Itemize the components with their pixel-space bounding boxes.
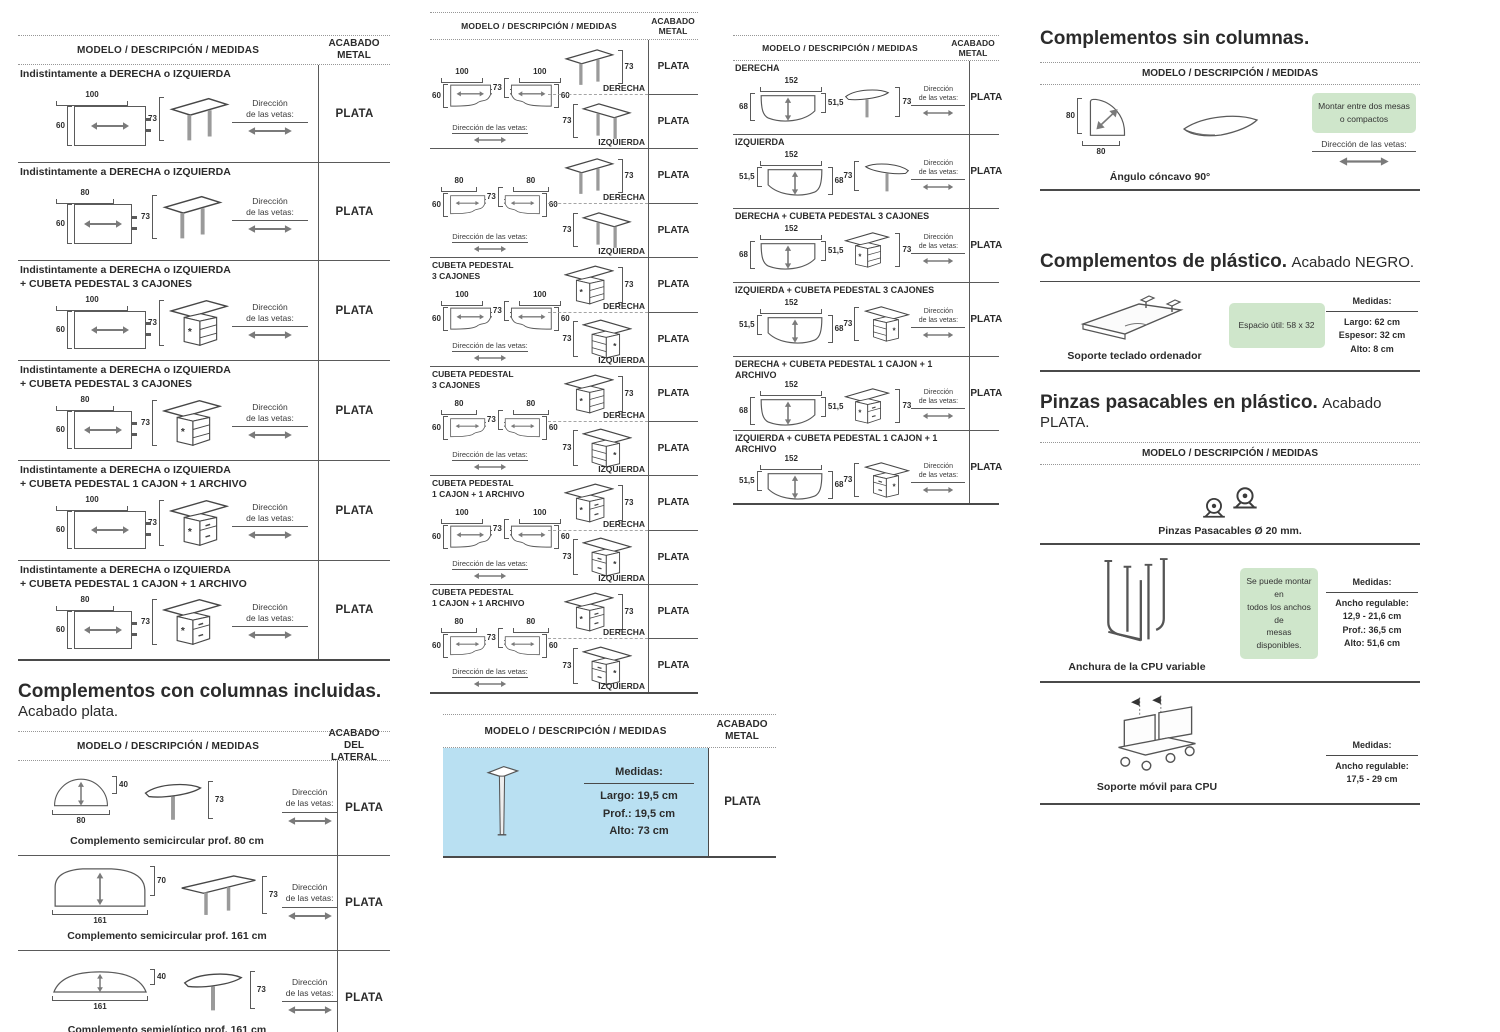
dimension-label: 73 (563, 662, 572, 670)
double-arrow-icon (83, 425, 123, 435)
plan-diagram: 152 51,5 68 (739, 455, 843, 505)
grain-arrow-icon (287, 816, 333, 826)
model-caption: Anchura de la CPU variable (1068, 661, 1205, 673)
column-header: MODELO / DESCRIPCIÓN / MEDIDAS (733, 43, 947, 53)
side-label: DERECHA (603, 301, 645, 311)
dimension-label: 60 (432, 424, 441, 432)
column-header-finish: ACABADOMETAL (947, 38, 999, 58)
finish-value: PLATA (708, 748, 776, 856)
dimension-label: 161 (93, 917, 106, 925)
grain-direction-note: Direcciónde las vetas: (282, 882, 337, 923)
grain-arrow-icon (247, 330, 293, 340)
dimension-label: 100 (85, 496, 98, 504)
plan-diagram: 100 60 (56, 496, 146, 549)
sub-row-izquierda: 73 IZQUIERDA (548, 203, 648, 258)
column-header: MODELO / DESCRIPCIÓN / MEDIDAS (18, 741, 318, 752)
dimension-label: 68 (835, 177, 844, 185)
grain-arrow-icon (473, 680, 507, 688)
model-caption: Ángulo cóncavo 90° (1040, 167, 1280, 189)
dimension-label: 100 (455, 291, 468, 299)
table-header: MODELO / DESCRIPCIÓN / MEDIDAS ACABADOME… (443, 714, 776, 748)
dimension-label: 80 (526, 618, 535, 626)
row-title: Indistintamente a DERECHA o IZQUIERDA (18, 65, 318, 82)
grain-direction-note: Direcciónde las vetas: (911, 307, 965, 342)
section-title: Complementos con columnas incluidas. Aca… (18, 681, 390, 721)
dimension-label: 80 (455, 177, 464, 185)
side-label: DERECHA (603, 627, 645, 637)
dimension-label: 51,5 (739, 173, 755, 181)
column-header-finish: ACABADO DELLATERAL (318, 728, 390, 764)
sub-row-derecha: 73 DERECHA (548, 367, 648, 421)
grain-direction-note: Dirección de las vetas: (432, 450, 548, 473)
finish-value: PLATA (969, 135, 1002, 208)
dimension-label: 80 (1097, 148, 1106, 156)
row-title: CUBETA PEDESTAL3 CAJONES (432, 369, 548, 390)
grain-arrow-icon (922, 331, 954, 339)
dimension-label: 73 (843, 172, 852, 180)
dimension-label: 73 (493, 84, 502, 92)
side-label: DERECHA (603, 83, 645, 93)
side-label: IZQUIERDA (598, 246, 645, 256)
dimension-label: 80 (77, 817, 86, 825)
measurements-block: Medidas: Largo: 19,5 cm Prof.: 19,5 cm A… (584, 764, 694, 839)
double-arrow-icon (90, 121, 130, 131)
grain-arrow-icon (1338, 156, 1390, 167)
dimension-label: 40 (157, 973, 166, 981)
measurements-block: Medidas: Largo: 62 cm Espesor: 32 cm Alt… (1326, 295, 1418, 356)
plan-diagram: 152 68 51,5 (739, 381, 843, 431)
desk-icon (180, 967, 246, 1013)
desk-plan-icon (764, 167, 826, 201)
table-row: Indistintamente a DERECHA o IZQUIERDA+ C… (18, 561, 390, 661)
finish-value: PLATA (337, 856, 390, 950)
dimension-label: 73 (563, 117, 572, 125)
dimension-label: 60 (56, 220, 65, 228)
desk-pedestal-file-drawer-icon (843, 386, 891, 426)
table-row: DERECHA + CUBETA PEDESTAL 3 CAJONES 152 … (733, 209, 999, 283)
grain-arrow-icon (473, 572, 507, 580)
sub-row-derecha: 73 DERECHA (548, 40, 648, 94)
complements-section: Complementos sin columnas. MODELO / DESC… (1040, 28, 1420, 805)
table-row: Anchura de la CPU variable Se puede mont… (1040, 545, 1420, 683)
plan-diagram: 80 60 (56, 596, 132, 649)
column-header: MODELO / DESCRIPCIÓN / MEDIDAS (1040, 442, 1420, 465)
plan-diagram: 80 60 (56, 396, 132, 449)
desk-icon (142, 777, 204, 823)
desk-pedestal-3-drawers-icon (843, 230, 891, 270)
dimension-label: 73 (625, 390, 634, 398)
model-caption: Complemento semicircular prof. 80 cm (52, 833, 282, 851)
grain-direction-note: Dirección de las vetas: (432, 667, 548, 690)
model-caption: Complemento semielíptico prof. 161 cm (52, 1022, 282, 1032)
plan-diagram: 100 60 (56, 91, 146, 146)
sub-row-izquierda: 73 IZQUIERDA (548, 312, 648, 367)
grain-arrow-icon (473, 245, 507, 253)
dimension-label: 73 (902, 246, 911, 254)
desk-pedestal-3-drawers-icon (863, 304, 911, 344)
table-header: MODELO / DESCRIPCIÓN / MEDIDAS ACABADO D… (18, 731, 390, 761)
desk-icon (863, 156, 911, 196)
dimension-label: 100 (533, 291, 546, 299)
finish-value: PLATA (649, 421, 698, 476)
desk-icon (843, 82, 891, 122)
finish-value: PLATA (649, 149, 698, 203)
desk-plan-icon (450, 193, 486, 217)
dimension-label: 73 (902, 98, 911, 106)
table-row: Indistintamente a DERECHA o IZQUIERDA+ C… (18, 261, 390, 361)
grain-direction-note: Direcciónde las vetas: (911, 388, 965, 423)
dimension-label: 73 (625, 608, 634, 616)
grain-direction-note: Direcciónde las vetas: (282, 977, 337, 1018)
column-header-finish: ACABADOMETAL (708, 719, 776, 743)
measurements-block: Medidas: Ancho regulable: 17,5 - 29 cm (1326, 739, 1418, 787)
dimension-label: 100 (85, 296, 98, 304)
row-title: DERECHA + CUBETA PEDESTAL 3 CAJONES (733, 209, 969, 222)
grain-arrow-icon (287, 1005, 333, 1015)
table-row: IZQUIERDA + CUBETA PEDESTAL 3 CAJONES 15… (733, 283, 999, 357)
dimension-label: 73 (269, 891, 278, 899)
sub-row-derecha: 73 DERECHA (548, 476, 648, 530)
desk-plan-icon (504, 634, 540, 658)
dimension-label: 73 (141, 213, 150, 221)
row-title: CUBETA PEDESTAL3 CAJONES (432, 260, 548, 281)
table-header: MODELO / DESCRIPCIÓN / MEDIDAS ACABADOME… (733, 35, 999, 61)
desk-pedestal-3-drawers-icon (168, 297, 230, 349)
desk-icon (180, 872, 258, 918)
grain-direction-note: Direcciónde las vetas: (232, 602, 308, 643)
dimension-label: 60 (56, 122, 65, 130)
finish-value: PLATA (318, 65, 390, 162)
grain-arrow-icon (247, 430, 293, 440)
desk-plan-icon (757, 93, 819, 127)
grain-direction-note: Direcciónde las vetas: (282, 787, 337, 828)
semicircle-plan-icon (52, 866, 148, 908)
dimension-label: 100 (455, 68, 468, 76)
dimension-label: 73 (487, 193, 496, 201)
desk-plan-icon (450, 84, 492, 108)
plan-diagram: 40 80 (52, 776, 128, 825)
double-arrow-icon (83, 219, 123, 229)
cable-clip-icon (1201, 495, 1227, 519)
grain-arrow-icon (473, 463, 507, 471)
grain-arrow-icon (922, 412, 954, 420)
finish-value: PLATA (318, 361, 390, 460)
dimension-label: 100 (533, 68, 546, 76)
plan-diagram: 152 51,5 68 (739, 299, 843, 349)
grain-arrow-icon (473, 354, 507, 362)
desk-plan-icon (510, 84, 552, 108)
table-row: Indistintamente a DERECHA o IZQUIERDA 10… (18, 65, 390, 163)
finish-value: PLATA (969, 357, 1002, 430)
desk-pedestal-3-drawers-icon (161, 397, 223, 449)
model-caption: Complemento semicircular prof. 161 cm (52, 928, 282, 946)
dimension-label: 60 (432, 201, 441, 209)
plan-diagram: 152 51,5 68 (739, 151, 843, 201)
dimension-label: 80 (81, 396, 90, 404)
desk-plan-icon (450, 416, 486, 440)
dimension-label: 51,5 (739, 321, 755, 329)
table-row-group: CUBETA PEDESTAL3 CAJONES 100 60 73 100 6… (430, 258, 698, 367)
dimension-label: 60 (432, 642, 441, 650)
finish-value: PLATA (649, 258, 698, 312)
dimension-label: 60 (432, 315, 441, 323)
finish-value: PLATA (969, 61, 1002, 134)
grain-arrow-icon (922, 109, 954, 117)
dimension-label: 161 (93, 1003, 106, 1011)
note-box: Espacio útil: 58 x 32 (1229, 303, 1325, 348)
catalog-page: MODELO / DESCRIPCIÓN / MEDIDAS ACABADOME… (0, 0, 1500, 1032)
dimension-label: 68 (739, 103, 748, 111)
grain-arrow-icon (922, 486, 954, 494)
grain-direction-note: Dirección de las vetas: (1312, 133, 1416, 152)
dimension-label: 73 (141, 419, 150, 427)
grain-direction-note: Dirección de las vetas: (432, 123, 548, 146)
dimension-label: 73 (141, 618, 150, 626)
finish-value: PLATA (318, 163, 390, 260)
column-header-finish: ACABADOMETAL (648, 16, 698, 36)
table-row: DERECHA + CUBETA PEDESTAL 1 CAJON + 1 AR… (733, 357, 999, 431)
table-row: 40 80 73 Complemento semicircular prof. … (18, 761, 390, 856)
dimension-label: 73 (563, 444, 572, 452)
table-row: 40 161 73 Complemento semielíptico prof.… (18, 951, 390, 1032)
finish-value: PLATA (649, 585, 698, 638)
plan-diagram: 80 60 73 80 60 (432, 390, 548, 450)
model-caption: Pinzas Pasacables Ø 20 mm. (1040, 525, 1420, 537)
sub-row-izquierda: 73 IZQUIERDA (548, 530, 648, 585)
dimension-label: 80 (81, 189, 90, 197)
table-row-group: CUBETA PEDESTAL1 CAJON + 1 ARCHIVO 80 60… (430, 585, 698, 694)
finish-value: PLATA (969, 209, 1002, 282)
table-row: Soporte teclado ordenador Espacio útil: … (1040, 281, 1420, 372)
double-arrow-icon (83, 625, 123, 635)
keyboard-tray-icon (1075, 290, 1195, 346)
row-title (432, 42, 548, 53)
finish-value: PLATA (337, 761, 390, 855)
cable-clip-icon (1231, 483, 1259, 511)
finish-value: PLATA (649, 530, 698, 585)
table-row: Indistintamente a DERECHA o IZQUIERDA+ C… (18, 461, 390, 561)
dimension-label: 60 (432, 533, 441, 541)
table-row: Indistintamente a DERECHA o IZQUIERDA+ C… (18, 361, 390, 461)
table-row: Medidas: Largo: 19,5 cm Prof.: 19,5 cm A… (443, 748, 776, 858)
table-leg-icon (483, 758, 521, 846)
dimension-label: 80 (1066, 112, 1075, 120)
table-row: 80 80 Montar entre dos mesaso compactos … (1040, 85, 1420, 167)
row-title: CUBETA PEDESTAL1 CAJON + 1 ARCHIVO (432, 587, 548, 608)
finish-value: PLATA (969, 283, 1002, 356)
dimension-label: 51,5 (828, 247, 844, 255)
side-label: DERECHA (603, 192, 645, 202)
column-header: MODELO / DESCRIPCIÓN / MEDIDAS (18, 45, 318, 56)
dimension-label: 73 (625, 172, 634, 180)
sub-row-derecha: 73 DERECHA (548, 149, 648, 203)
desk-plan-icon (504, 416, 540, 440)
plan-diagram: 80 60 (56, 189, 132, 244)
finish-value: PLATA (649, 94, 698, 149)
finish-value: PLATA (318, 261, 390, 360)
dimension-label: 152 (785, 151, 798, 159)
row-title: Indistintamente a DERECHA o IZQUIERDA+ C… (18, 361, 318, 391)
desk-plan-icon (510, 525, 552, 549)
grain-direction-note: Direcciónde las vetas: (232, 302, 308, 343)
note-box: Se puede montar entodos los anchos demes… (1240, 568, 1318, 659)
dimension-label: 73 (902, 402, 911, 410)
dimension-label: 60 (432, 92, 441, 100)
dimension-label: 73 (625, 63, 634, 71)
dimension-label: 80 (526, 177, 535, 185)
finish-value: PLATA (337, 951, 390, 1032)
side-label: DERECHA (603, 519, 645, 529)
grain-direction-note: Direcciónde las vetas: (911, 85, 965, 120)
finish-value: PLATA (649, 476, 698, 530)
model-caption: Soporte móvil para CPU (1097, 781, 1217, 793)
desk-plan-icon (764, 315, 826, 349)
dimension-label: 73 (493, 525, 502, 533)
dimension-label: 73 (563, 335, 572, 343)
cpu-holder-icon (1093, 555, 1181, 655)
semielliptic-plan-icon (52, 969, 148, 994)
table-row-group: 80 60 73 80 60 Dirección de las vetas: 7… (430, 149, 698, 258)
dimension-label: 152 (785, 77, 798, 85)
column-header: MODELO / DESCRIPCIÓN / MEDIDAS (430, 21, 648, 31)
dimension-label: 73 (257, 986, 266, 994)
plan-diagram: 80 60 73 80 60 (432, 608, 548, 667)
dimension-label: 73 (487, 416, 496, 424)
row-title: CUBETA PEDESTAL1 CAJON + 1 ARCHIVO (432, 478, 548, 499)
side-label: IZQUIERDA (598, 681, 645, 691)
grain-arrow-icon (922, 183, 954, 191)
dimension-label: 80 (526, 400, 535, 408)
section-title: Pinzas pasacables en plástico. Acabado P… (1040, 392, 1420, 432)
dimension-label: 73 (625, 281, 634, 289)
grain-direction-note: Direcciónde las vetas: (232, 502, 308, 543)
desk-icon (161, 191, 223, 243)
finish-value: PLATA (318, 461, 390, 560)
double-arrow-icon (90, 325, 130, 335)
column-header: MODELO / DESCRIPCIÓN / MEDIDAS (443, 726, 708, 737)
finish-value: PLATA (649, 203, 698, 258)
grain-direction-note: Dirección de las vetas: (432, 559, 548, 582)
middle-table-section: MODELO / DESCRIPCIÓN / MEDIDAS ACABADOME… (430, 12, 698, 694)
dimension-label: 73 (563, 553, 572, 561)
grain-arrow-icon (247, 630, 293, 640)
plan-diagram: 80 80 (1066, 93, 1130, 156)
table-row-group: 100 60 73 100 60 Dirección de las vetas:… (430, 40, 698, 149)
sub-row-izquierda: 73 IZQUIERDA (548, 421, 648, 476)
dimension-label: 152 (785, 381, 798, 389)
dimension-label: 73 (493, 307, 502, 315)
desk-icon (168, 93, 230, 145)
dimension-label: 73 (625, 499, 634, 507)
sub-row-derecha: 73 DERECHA (548, 258, 648, 312)
dimension-label: 73 (843, 320, 852, 328)
dimension-label: 40 (119, 781, 128, 789)
measurements-block: Medidas: Ancho regulable: 12,9 - 21,6 cm… (1326, 576, 1418, 651)
desk-pedestal-file-drawer-icon (168, 497, 230, 549)
desk-plan-icon (764, 471, 826, 505)
row-title (432, 151, 548, 162)
desk-plan-icon (450, 634, 486, 658)
section-title: Complementos de plástico. Acabado NEGRO. (1040, 251, 1420, 273)
finish-value: PLATA (649, 40, 698, 94)
table-row: 70 161 73 Complemento semicircular prof.… (18, 856, 390, 951)
dimension-label: 73 (563, 226, 572, 234)
row-title: Indistintamente a DERECHA o IZQUIERDA+ C… (18, 561, 318, 591)
right-table-section: MODELO / DESCRIPCIÓN / MEDIDAS ACABADOME… (733, 35, 999, 505)
dimension-label: 51,5 (828, 403, 844, 411)
table-row: IZQUIERDA 152 51,5 68 73 Direcciónde las… (733, 135, 999, 209)
plan-diagram: 80 60 73 80 60 (432, 162, 548, 232)
finish-value: PLATA (318, 561, 390, 659)
section-title: Complementos sin columnas. (1040, 28, 1420, 50)
grain-direction-note: Dirección de las vetas: (432, 341, 548, 364)
dimension-label: 73 (215, 796, 224, 804)
sub-row-izquierda: 73 IZQUIERDA (548, 94, 648, 149)
grain-arrow-icon (247, 224, 293, 234)
dimension-label: 152 (785, 455, 798, 463)
desk-plan-icon (510, 307, 552, 331)
plan-diagram: 40 161 (52, 969, 166, 1011)
model-caption: Soporte teclado ordenador (1067, 350, 1201, 362)
table-row-group: CUBETA PEDESTAL3 CAJONES 80 60 73 80 60 … (430, 367, 698, 476)
row-title: DERECHA + CUBETA PEDESTAL 1 CAJON + 1 AR… (733, 357, 969, 381)
corner-top-icon (1181, 111, 1261, 141)
cpu-trolley-icon (1107, 691, 1207, 773)
desk-plan-icon (757, 397, 819, 431)
dimension-label: 152 (785, 299, 798, 307)
dimension-label: 68 (835, 481, 844, 489)
dimension-label: 51,5 (739, 477, 755, 485)
table-row: DERECHA 152 68 51,5 73 Direcciónde las v… (733, 61, 999, 135)
dimension-label: 68 (739, 251, 748, 259)
row-title: IZQUIERDA + CUBETA PEDESTAL 3 CAJONES (733, 283, 969, 296)
grain-arrow-icon (287, 911, 333, 921)
dimension-label: 51,5 (828, 99, 844, 107)
sub-row-derecha: 73 DERECHA (548, 585, 648, 638)
grain-direction-note: Direcciónde las vetas: (911, 233, 965, 268)
dimension-label: 68 (739, 407, 748, 415)
table-row: Pinzas Pasacables Ø 20 mm. (1040, 465, 1420, 545)
grain-arrow-icon (247, 530, 293, 540)
desk-pedestal-file-drawer-icon (161, 596, 223, 648)
dimension-label: 70 (157, 877, 166, 885)
dimension-label: 100 (455, 509, 468, 517)
dimension-label: 100 (533, 509, 546, 517)
grain-direction-note: Dirección de las vetas: (432, 232, 548, 255)
column-header: MODELO / DESCRIPCIÓN / MEDIDAS (1040, 62, 1420, 85)
finish-value: PLATA (649, 312, 698, 367)
dimension-label: 80 (81, 596, 90, 604)
table-header: MODELO / DESCRIPCIÓN / MEDIDAS ACABADOME… (430, 12, 698, 40)
grain-direction-note: Direcciónde las vetas: (232, 98, 308, 139)
dimension-label: 80 (455, 618, 464, 626)
row-title: IZQUIERDA + CUBETA PEDESTAL 1 CAJON + 1 … (733, 431, 969, 455)
column-header-finish: ACABADOMETAL (318, 38, 390, 62)
row-title: IZQUIERDA (733, 135, 969, 148)
plan-diagram: 100 60 73 100 60 (432, 499, 548, 559)
grain-arrow-icon (247, 126, 293, 136)
grain-arrow-icon (473, 136, 507, 144)
dimension-label: 73 (843, 476, 852, 484)
row-title: Indistintamente a DERECHA o IZQUIERDA+ C… (18, 461, 318, 491)
grain-direction-note: Direcciónde las vetas: (232, 196, 308, 237)
row-title: DERECHA (733, 61, 969, 74)
semicircle-plan-icon (52, 776, 110, 808)
table-row: Soporte móvil para CPU Medidas: Ancho re… (1040, 683, 1420, 805)
plan-diagram: 100 60 73 100 60 (432, 281, 548, 341)
row-title: Indistintamente a DERECHA o IZQUIERDA+ C… (18, 261, 318, 291)
plan-diagram: 152 68 51,5 (739, 77, 843, 127)
